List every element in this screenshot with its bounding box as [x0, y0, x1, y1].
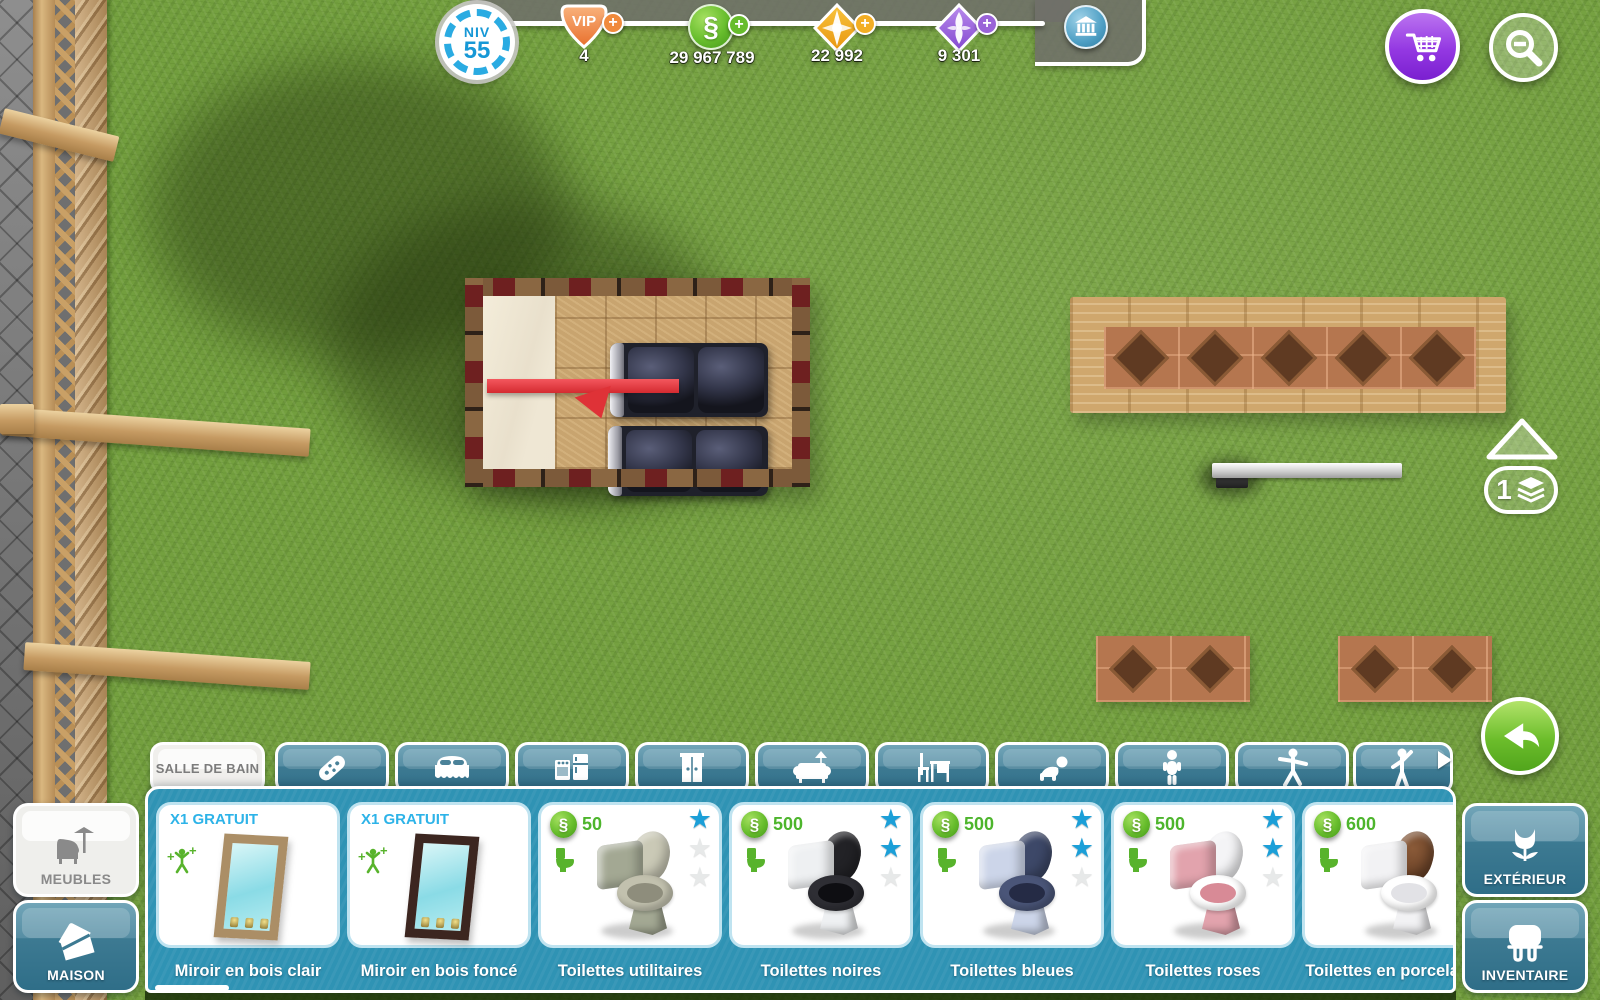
item-name: Toilettes bleues [920, 962, 1104, 981]
star-rating [879, 807, 903, 894]
adult-icon [1385, 746, 1421, 790]
layers-icon [1516, 476, 1546, 504]
house-icon [49, 917, 103, 967]
inventaire-button[interactable]: INVENTAIRE [1462, 900, 1588, 993]
svg-text:+: + [358, 849, 366, 864]
level-badge[interactable]: NIV 55 [439, 4, 515, 80]
elevation-up-button[interactable] [1484, 416, 1560, 467]
item-image-toilet-porcelain [1353, 831, 1449, 943]
shop-item-card[interactable]: X1 GRATUIT + + [347, 802, 531, 948]
room-wall [792, 278, 810, 487]
exterieur-button[interactable]: EXTÉRIEUR [1462, 803, 1588, 897]
crawling-baby-icon [1030, 751, 1074, 785]
svg-text:+: + [380, 845, 388, 858]
sofa-lamp-icon [789, 749, 835, 787]
maison-button[interactable]: MAISON [13, 900, 139, 993]
svg-text:VIP: VIP [572, 13, 596, 30]
shop-items-panel: X1 GRATUIT + + Miroir en bois clair X1 G… [145, 786, 1456, 993]
item-image-toilet-utility [589, 831, 685, 943]
toilet-need-icon [935, 847, 959, 875]
room-wall [465, 278, 483, 487]
toilet-need-icon [1317, 847, 1341, 875]
shop-item-card[interactable]: 500 [920, 802, 1104, 948]
item-name: Toilettes roses [1111, 962, 1295, 981]
star-rating [1452, 807, 1456, 894]
simoleons-plus-button[interactable]: + [728, 14, 750, 36]
simoleon-coin-icon [688, 4, 734, 50]
zoom-out-button[interactable] [1489, 13, 1558, 82]
item-image-toilet-blue [971, 831, 1067, 943]
shop-item-card[interactable]: 600 [1302, 802, 1456, 948]
town-hall-icon[interactable] [1064, 5, 1108, 49]
tiled-walkway[interactable] [1070, 297, 1506, 413]
item-image-toilet-pink [1162, 831, 1258, 943]
simoleons-currency[interactable]: + 29 967 789 [688, 4, 734, 50]
item-image-toilet-black [780, 831, 876, 943]
star-rating [1261, 807, 1285, 894]
magnifier-minus-icon [1501, 25, 1547, 71]
walkway-tiles [1104, 327, 1476, 389]
bed-icon [430, 751, 474, 785]
flower-icon [1500, 825, 1550, 871]
star-rating [1070, 807, 1094, 894]
shop-item-card[interactable]: X1 GRATUIT + + [156, 802, 340, 948]
undo-button[interactable] [1481, 697, 1559, 775]
social-points-plus-button[interactable]: + [854, 13, 876, 35]
toilet-need-icon [744, 847, 768, 875]
toilet-need-icon [553, 847, 577, 875]
toilet-need-icon [1126, 847, 1150, 875]
red-wall-marker[interactable] [487, 379, 679, 393]
inventory-bag-icon [1499, 921, 1551, 967]
svg-text:+: + [167, 849, 175, 864]
free-badge: X1 GRATUIT [361, 811, 449, 828]
buy-mode-cart-button[interactable] [1385, 9, 1460, 84]
simoleon-coin-icon [1123, 811, 1150, 838]
shop-item-card[interactable]: 500 [729, 802, 913, 948]
item-name: Toilettes en porcelaine [1302, 962, 1456, 981]
tab-label: SALLE DE BAIN [156, 761, 260, 776]
furniture-icon [50, 823, 102, 871]
lamp-post[interactable] [1212, 463, 1402, 478]
tabs-scroll-right-arrow[interactable] [1438, 751, 1452, 769]
fence-beam-post [0, 404, 34, 434]
triangle-up-icon [1484, 416, 1560, 462]
curved-arrow-left-icon [1496, 712, 1544, 760]
item-name: Miroir en bois clair [156, 962, 340, 981]
simoleon-coin-icon [932, 811, 959, 838]
simoleon-coin-icon [550, 811, 577, 838]
free-badge: X1 GRATUIT [170, 811, 258, 828]
floor-level-indicator[interactable]: 1 [1484, 466, 1558, 514]
item-name: Toilettes noires [729, 962, 913, 981]
preteen-icon [1272, 747, 1312, 789]
tile-patch[interactable] [1338, 636, 1492, 702]
inventaire-label: INVENTAIRE [1482, 967, 1569, 983]
social-points-value: 22 992 [777, 46, 897, 66]
social-points-currency[interactable]: + 22 992 [812, 2, 862, 59]
item-name: Toilettes utilitaires [538, 962, 722, 981]
xp-ring [444, 9, 510, 75]
item-image-mirror-light [214, 834, 289, 941]
remote-control-icon [311, 750, 353, 786]
floor-level-value: 1 [1496, 474, 1512, 506]
vip-plus-button[interactable]: + [602, 12, 624, 34]
svg-text:+: + [189, 845, 197, 858]
simoleon-coin-icon [1314, 811, 1341, 838]
item-image-mirror-dark [405, 834, 480, 941]
shop-item-card[interactable]: 500 [1111, 802, 1295, 948]
wardrobe-icon [672, 750, 712, 786]
room-wall [465, 278, 810, 296]
exterieur-label: EXTÉRIEUR [1484, 871, 1567, 887]
xp-figure-icon: + + [358, 845, 388, 875]
meubles-label: MEUBLES [41, 871, 112, 887]
lifestyle-points-plus-button[interactable]: + [976, 13, 998, 35]
meubles-button[interactable]: MEUBLES [13, 803, 139, 897]
xp-figure-icon: + + [167, 845, 197, 875]
vip-value: 4 [524, 46, 644, 66]
room-wall [465, 469, 810, 487]
lifestyle-points-currency[interactable]: + 9 301 [934, 2, 984, 59]
shop-item-card[interactable]: 50 [538, 802, 722, 948]
simoleons-value: 29 967 789 [652, 48, 772, 68]
shopping-cart-icon [1401, 25, 1445, 69]
shop-scrollbar-indicator[interactable] [155, 985, 229, 991]
desk-chair-icon [910, 749, 954, 787]
toddler-icon [1154, 748, 1190, 788]
star-rating [688, 807, 712, 894]
simoleon-coin-icon [741, 811, 768, 838]
maison-label: MAISON [47, 967, 105, 983]
item-name: Miroir en bois foncé [347, 962, 531, 981]
vip-currency[interactable]: VIP + 4 [556, 2, 612, 57]
kitchen-appliances-icon [551, 750, 593, 786]
lifestyle-points-value: 9 301 [899, 46, 1019, 66]
tile-patch[interactable] [1096, 636, 1250, 702]
